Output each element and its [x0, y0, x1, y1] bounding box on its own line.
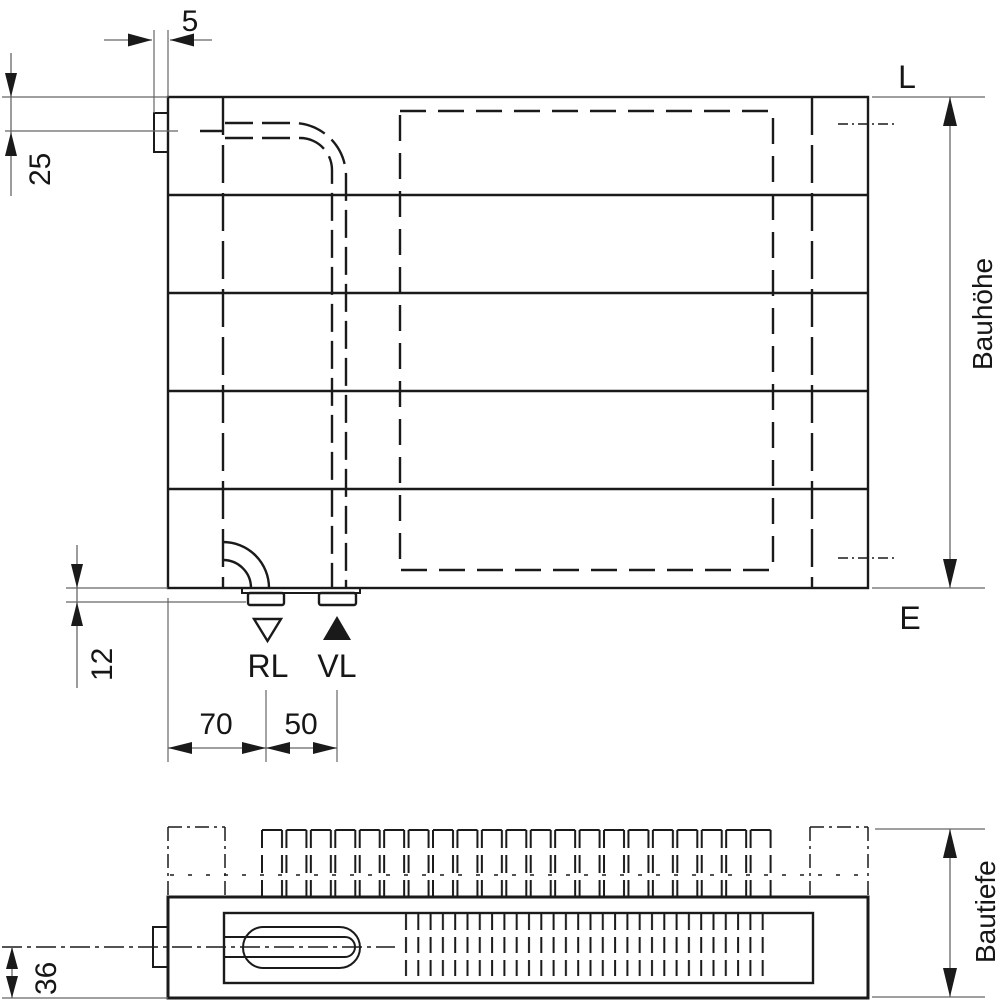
dim25-arrow-down-icon [5, 73, 17, 97]
dim70-arrow-left-icon [168, 742, 192, 754]
dim36-label: 36 [30, 962, 63, 995]
dim36-arrow-up-icon [6, 947, 18, 969]
dim25-label: 25 [24, 153, 57, 186]
dim12-arrow-up-icon [71, 602, 83, 626]
dim50-arrow-left-icon [266, 742, 290, 754]
corner-label-bottom: E [899, 600, 920, 636]
dim25-arrow-up-icon [5, 132, 17, 156]
drawing-svg: 5 25 12 70 50 Bauhöhe L E RL VL [0, 0, 1000, 1000]
dim36-arrow-down-icon [6, 976, 18, 998]
depth-arrow-up-icon [943, 829, 957, 858]
dim70-arrow-right-icon [242, 742, 266, 754]
height-arrow-down-icon [943, 559, 957, 588]
return-triangle-icon [254, 619, 281, 641]
flow-label: VL [317, 648, 356, 684]
dim12-label: 12 [86, 648, 119, 681]
depth-label: Bautiefe [970, 860, 1000, 963]
height-label: Bauhöhe [967, 258, 998, 370]
flow-stub [319, 593, 356, 605]
dim50-label: 50 [284, 708, 317, 741]
dim12-arrow-down-icon [71, 564, 83, 588]
dim50-arrow-right-icon [313, 742, 337, 754]
convector-fins-bottom [400, 914, 773, 983]
height-arrow-up-icon [943, 97, 957, 126]
panel-seam-lines [168, 195, 868, 489]
depth-arrow-down-icon [943, 968, 957, 997]
return-stub [248, 593, 284, 605]
dim25-extension-lines [2, 97, 178, 131]
dim12-extension-lines [66, 588, 246, 602]
bottom-view: 36 Bautiefe [2, 827, 1000, 998]
phantom-right-bracket [810, 827, 868, 897]
corner-label-top: L [898, 59, 916, 95]
convector-fins-top [260, 829, 773, 897]
return-elbow-inner [223, 560, 251, 588]
flow-pipe-outer [225, 123, 346, 587]
dim5-arrow-right-icon [128, 34, 152, 47]
return-label: RL [248, 648, 289, 684]
flow-pipe-inner [225, 138, 332, 587]
front-view [154, 97, 897, 641]
dim5-extension-lines [154, 30, 168, 113]
bracket-tab [154, 113, 168, 152]
dim5-label: 5 [182, 5, 199, 38]
dim70-label: 70 [199, 708, 232, 741]
hidden-plate-outline [400, 111, 773, 570]
front-view-dimensions: 5 25 12 70 50 Bauhöhe L E RL VL [2, 5, 998, 762]
radiator-body-outline [168, 97, 868, 588]
radiator-technical-drawing: 5 25 12 70 50 Bauhöhe L E RL VL [0, 0, 1000, 1000]
return-elbow-outer [223, 542, 269, 588]
phantom-left-bracket [168, 827, 225, 897]
flow-triangle-icon [323, 616, 351, 640]
depth-extension-lines [872, 829, 985, 997]
